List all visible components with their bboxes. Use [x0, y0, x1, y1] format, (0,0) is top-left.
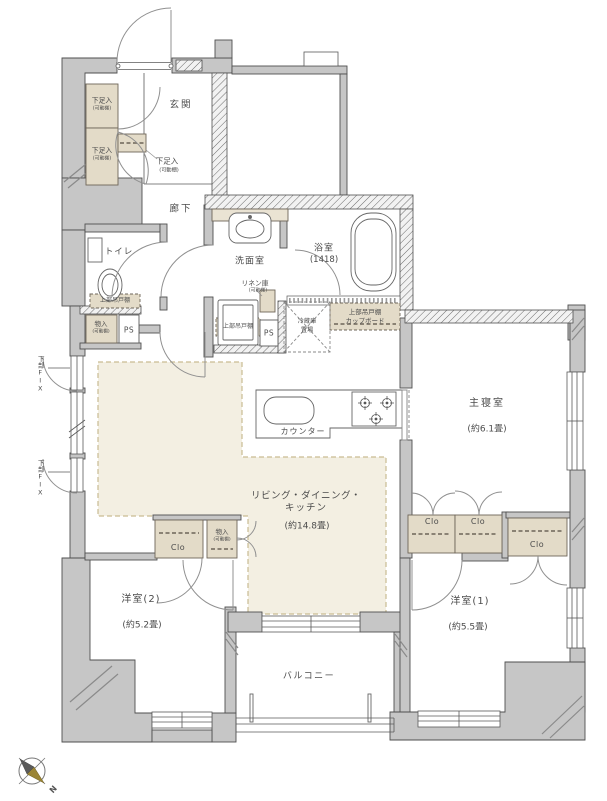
shoe-cabinet-door-swing: [118, 87, 160, 129]
compass-icon: [19, 758, 45, 784]
entrance-door-swing: [117, 8, 171, 62]
hatched-walls: [80, 60, 573, 353]
bedroom1-door-swing: [412, 560, 462, 610]
floor-plan: 玄関 廊下 トイレ 下足入 (可動棚) 下足入 (可動棚) 下足入 (可動棚) …: [0, 0, 607, 801]
stove: [352, 392, 396, 426]
bath-door-swing: [295, 250, 340, 295]
toilet-tank: [88, 238, 102, 262]
kitchen-sink: [264, 397, 314, 424]
fridge-space: [284, 302, 330, 352]
washroom-door-swing: [161, 245, 213, 297]
bedroom2-door-swing: [183, 560, 233, 610]
floorplan-drawing: [0, 0, 607, 801]
